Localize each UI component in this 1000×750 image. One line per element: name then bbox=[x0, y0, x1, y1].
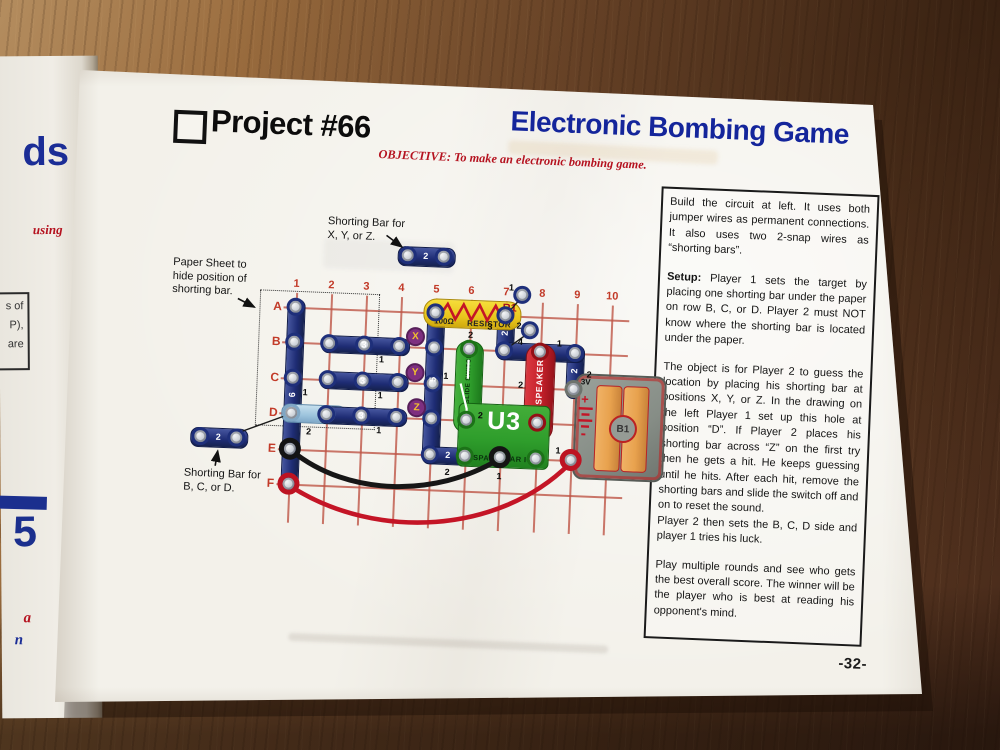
wire-count: 2 bbox=[569, 368, 579, 373]
stack-level: 2 bbox=[518, 380, 523, 390]
previous-page-italic-fragment: using bbox=[33, 222, 63, 238]
wire-count: 2 bbox=[423, 251, 428, 261]
stack-level: 1 bbox=[379, 354, 384, 364]
stack-level: 4 bbox=[518, 337, 523, 347]
stack-level: 1 bbox=[557, 338, 562, 348]
page-content: Project #66 Electronic Bombing Game OBJE… bbox=[56, 68, 910, 721]
manual-page: Project #66 Electronic Bombing Game OBJE… bbox=[55, 60, 935, 720]
stack-level: 3 bbox=[487, 322, 492, 332]
previous-page-text-box-fragment: s of P), are bbox=[0, 292, 30, 370]
stack-level: 1 bbox=[377, 390, 382, 400]
wire-count: 2 bbox=[500, 331, 510, 336]
previous-page-red-letter-fragment: a bbox=[24, 610, 32, 627]
stack-level: 2 bbox=[468, 330, 473, 340]
stack-level: 1 bbox=[509, 282, 514, 292]
stack-level: 2 bbox=[444, 467, 449, 477]
wire-count: 2 bbox=[445, 450, 450, 460]
wire-count: 2 bbox=[216, 432, 221, 442]
wire-count: 3 bbox=[360, 375, 365, 385]
box-fragment-line: s of bbox=[0, 297, 24, 316]
box-fragment-line: P), bbox=[0, 316, 24, 335]
stack-level: 1 bbox=[443, 371, 448, 381]
stack-level: 2 bbox=[586, 370, 591, 380]
box-fragment-line: are bbox=[0, 335, 24, 354]
previous-page-number-fragment: 5 bbox=[13, 508, 37, 557]
stack-level: 1 bbox=[376, 425, 381, 435]
wire-count: 5 bbox=[428, 377, 438, 382]
wire-count: 3 bbox=[361, 339, 366, 349]
previous-page-heading-fragment: ds bbox=[22, 130, 69, 175]
wire-count: 2 bbox=[306, 426, 311, 436]
stack-level: 1 bbox=[302, 387, 307, 397]
part-numbers: 6 1 5 1 2 3 2 2 3 1 3 1 3 1 2 4 2 2 2 2 bbox=[56, 68, 910, 721]
stack-level: 2 bbox=[478, 410, 483, 420]
wire-count: 6 bbox=[287, 392, 297, 397]
stack-level: 1 bbox=[496, 471, 501, 481]
wire-count: 3 bbox=[359, 410, 364, 420]
previous-page-blue-letter-fragment: n bbox=[15, 632, 23, 649]
stack-level: 2 bbox=[516, 321, 521, 331]
photo-of-manual-page: ds using s of P), are 5 a n Project #66 … bbox=[0, 0, 1000, 750]
stack-level: 1 bbox=[555, 445, 560, 455]
